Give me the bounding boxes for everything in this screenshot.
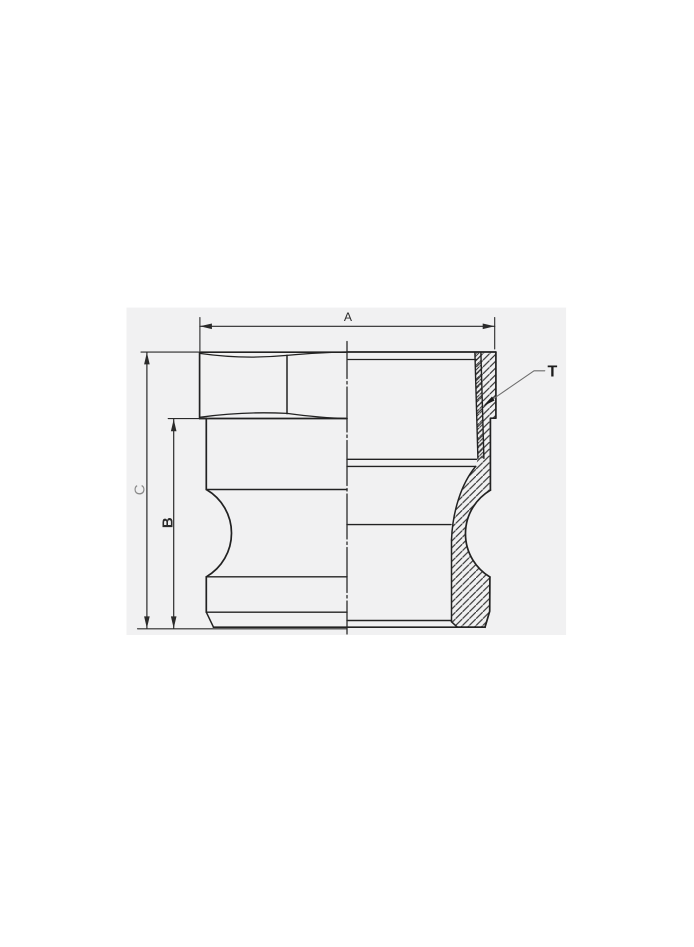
svg-text:B: B: [160, 517, 177, 528]
svg-text:A: A: [344, 310, 353, 324]
svg-text:T: T: [548, 364, 558, 381]
svg-text:C: C: [131, 484, 148, 495]
